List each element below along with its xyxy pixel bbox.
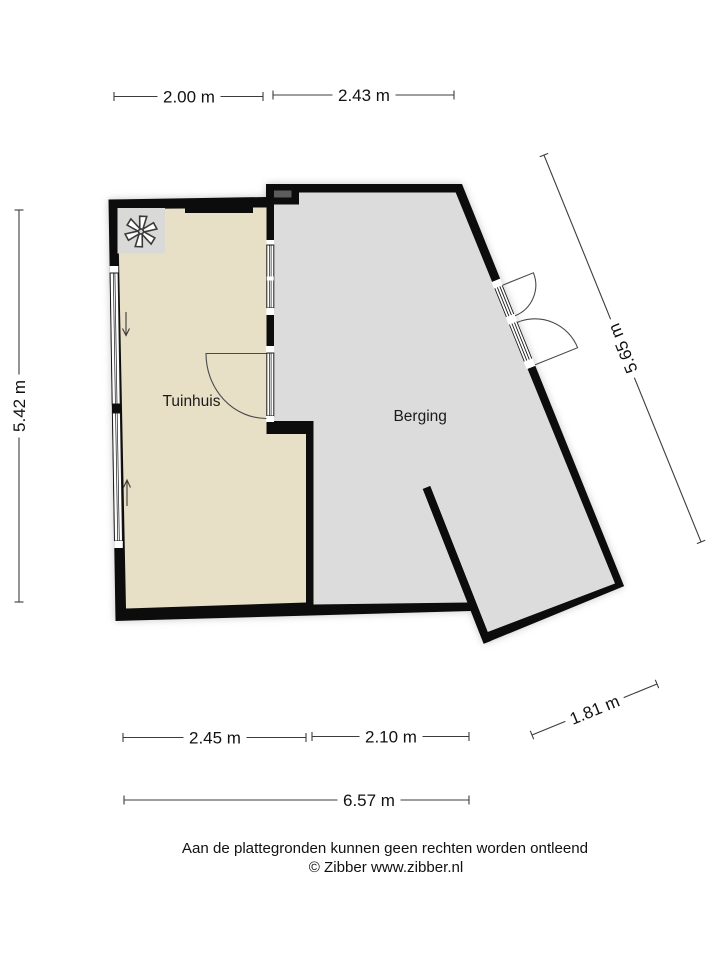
svg-text:6.57 m: 6.57 m bbox=[343, 791, 395, 810]
svg-text:Tuinhuis: Tuinhuis bbox=[162, 393, 220, 410]
svg-text:2.10 m: 2.10 m bbox=[365, 728, 417, 747]
svg-text:2.45 m: 2.45 m bbox=[189, 729, 241, 748]
svg-text:2.43 m: 2.43 m bbox=[338, 86, 390, 105]
svg-text:2.00 m: 2.00 m bbox=[163, 88, 215, 107]
svg-text:Berging: Berging bbox=[393, 408, 446, 425]
svg-text:Aan de plattegronden kunnen ge: Aan de plattegronden kunnen geen rechten… bbox=[182, 840, 588, 857]
svg-text:5.42 m: 5.42 m bbox=[10, 380, 29, 432]
svg-text:© Zibber www.zibber.nl: © Zibber www.zibber.nl bbox=[309, 859, 464, 876]
